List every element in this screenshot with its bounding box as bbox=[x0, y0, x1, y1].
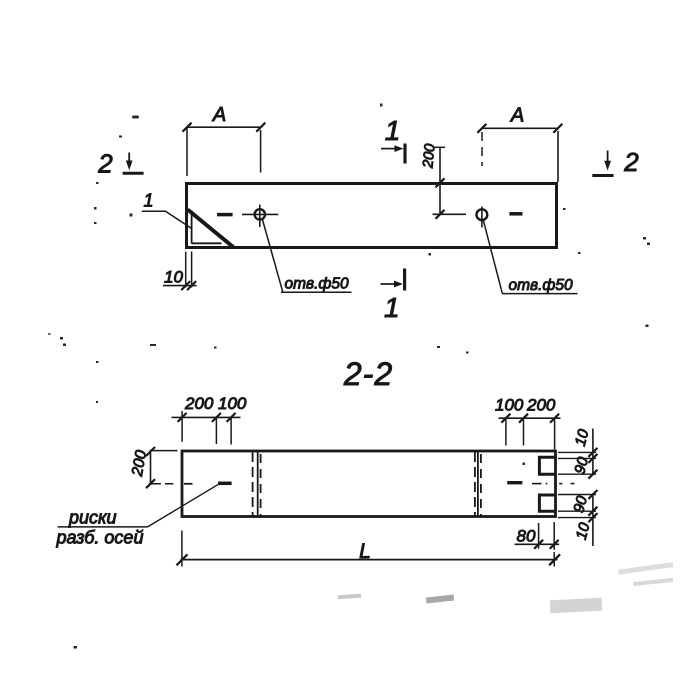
svg-text:2-2: 2-2 bbox=[343, 356, 393, 392]
svg-text:100: 100 bbox=[495, 396, 524, 415]
svg-text:1: 1 bbox=[143, 191, 153, 211]
svg-text:разб. осей: разб. осей bbox=[56, 528, 144, 548]
svg-text:отв.ф50: отв.ф50 bbox=[509, 277, 573, 294]
svg-text:80: 80 bbox=[517, 526, 536, 545]
svg-text:1: 1 bbox=[385, 115, 401, 146]
svg-text:A: A bbox=[510, 105, 524, 127]
svg-text:200: 200 bbox=[420, 143, 438, 170]
svg-text:риски: риски bbox=[68, 508, 117, 528]
svg-text:1: 1 bbox=[384, 292, 400, 323]
svg-text:200: 200 bbox=[184, 394, 214, 413]
svg-text:A: A bbox=[212, 104, 226, 126]
svg-text:200: 200 bbox=[526, 396, 556, 415]
svg-text:100: 100 bbox=[218, 394, 247, 413]
svg-text:отв.ф50: отв.ф50 bbox=[285, 276, 349, 293]
svg-text:L: L bbox=[359, 540, 371, 563]
svg-text:2: 2 bbox=[623, 147, 639, 177]
svg-text:2: 2 bbox=[97, 149, 113, 179]
svg-text:10: 10 bbox=[164, 268, 183, 287]
